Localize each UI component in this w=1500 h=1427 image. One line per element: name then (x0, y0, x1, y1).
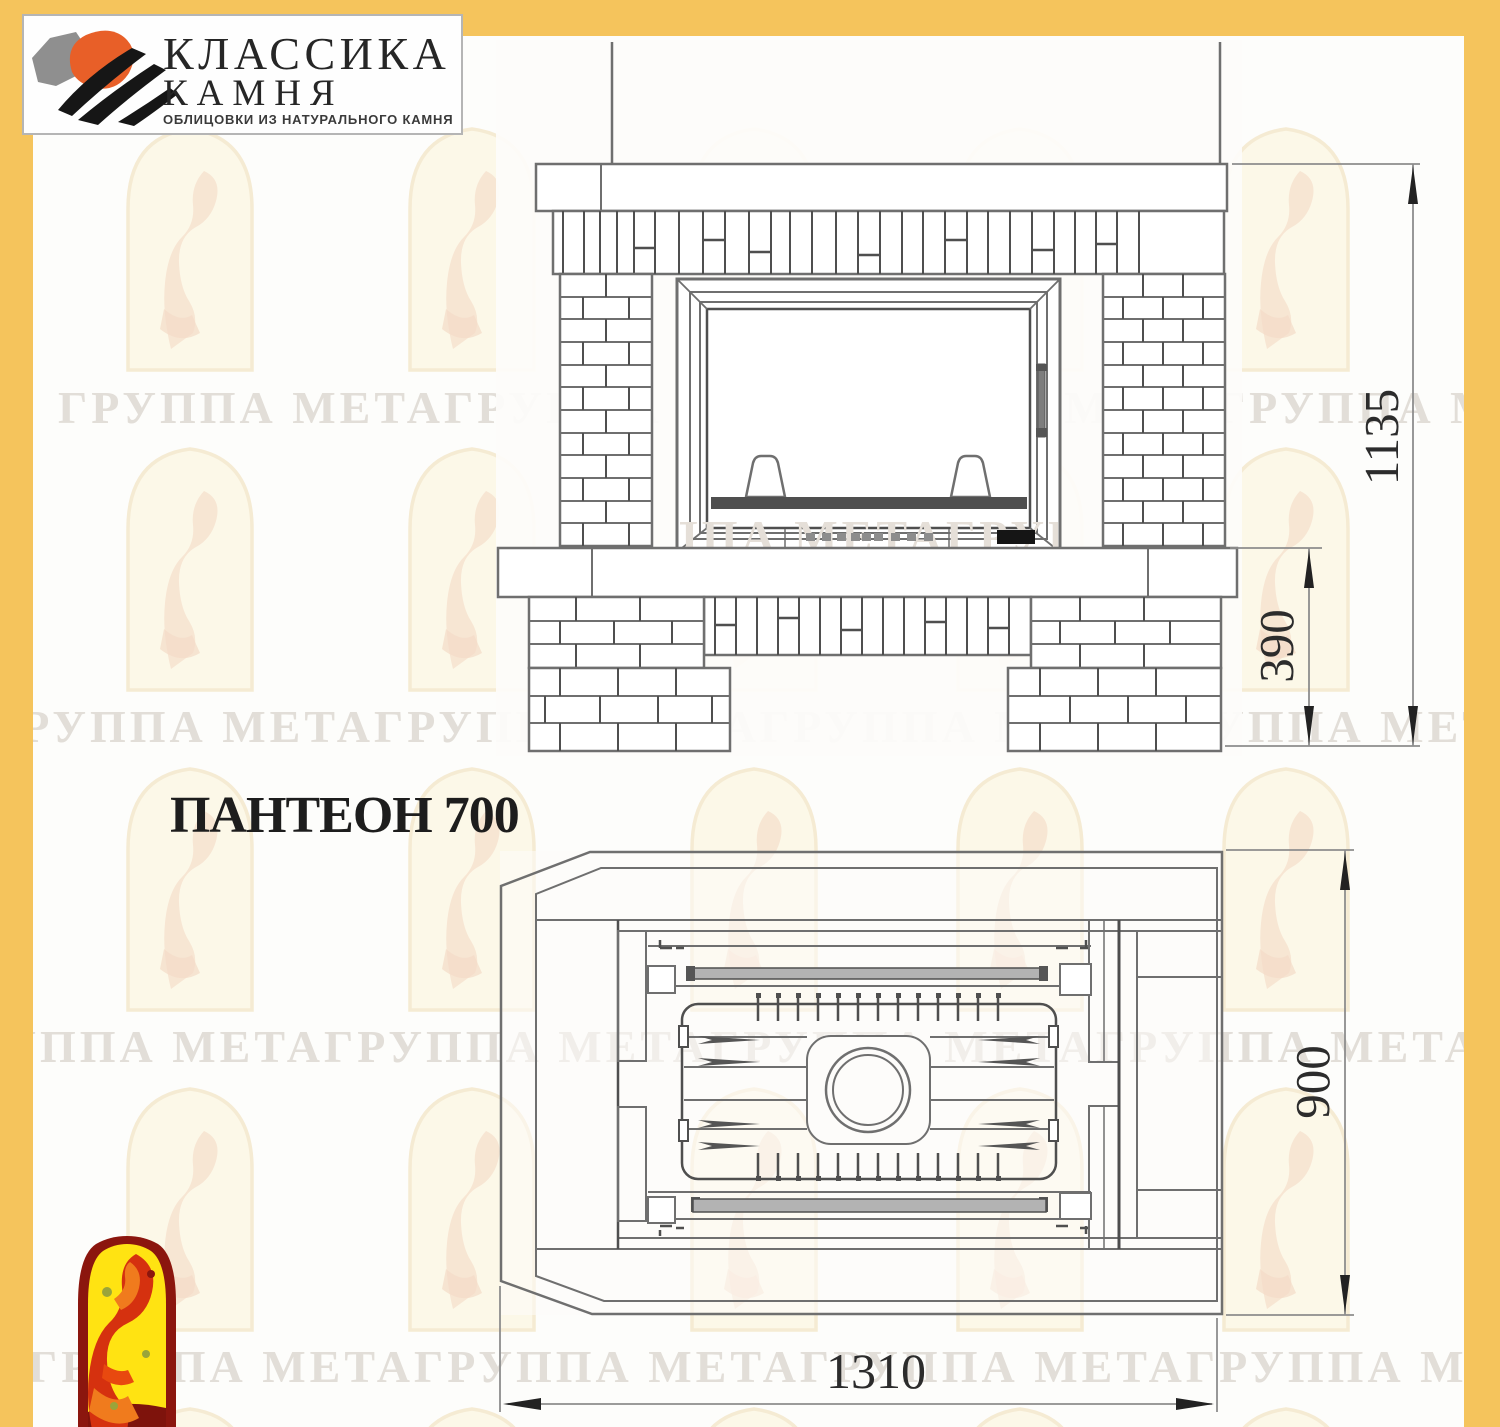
svg-text:КАМНЯ: КАМНЯ (163, 73, 344, 114)
svg-text:900: 900 (1285, 1045, 1340, 1119)
svg-text:1310: 1310 (826, 1343, 926, 1399)
svg-text:ГРУППА МЕТАГРУППА МЕТАГРУППА М: ГРУППА МЕТАГРУППА МЕТАГРУППА МЕТАГРУППА … (28, 1341, 1500, 1392)
svg-text:ПАНТЕОН 700: ПАНТЕОН 700 (170, 787, 519, 844)
svg-text:КЛАССИКА: КЛАССИКА (163, 28, 450, 79)
svg-text:390: 390 (1249, 609, 1304, 683)
svg-text:ОБЛИЦОВКИ ИЗ НАТУРАЛЬНОГО КАМН: ОБЛИЦОВКИ ИЗ НАТУРАЛЬНОГО КАМНЯ (163, 112, 453, 127)
svg-text:1135: 1135 (1354, 389, 1409, 485)
